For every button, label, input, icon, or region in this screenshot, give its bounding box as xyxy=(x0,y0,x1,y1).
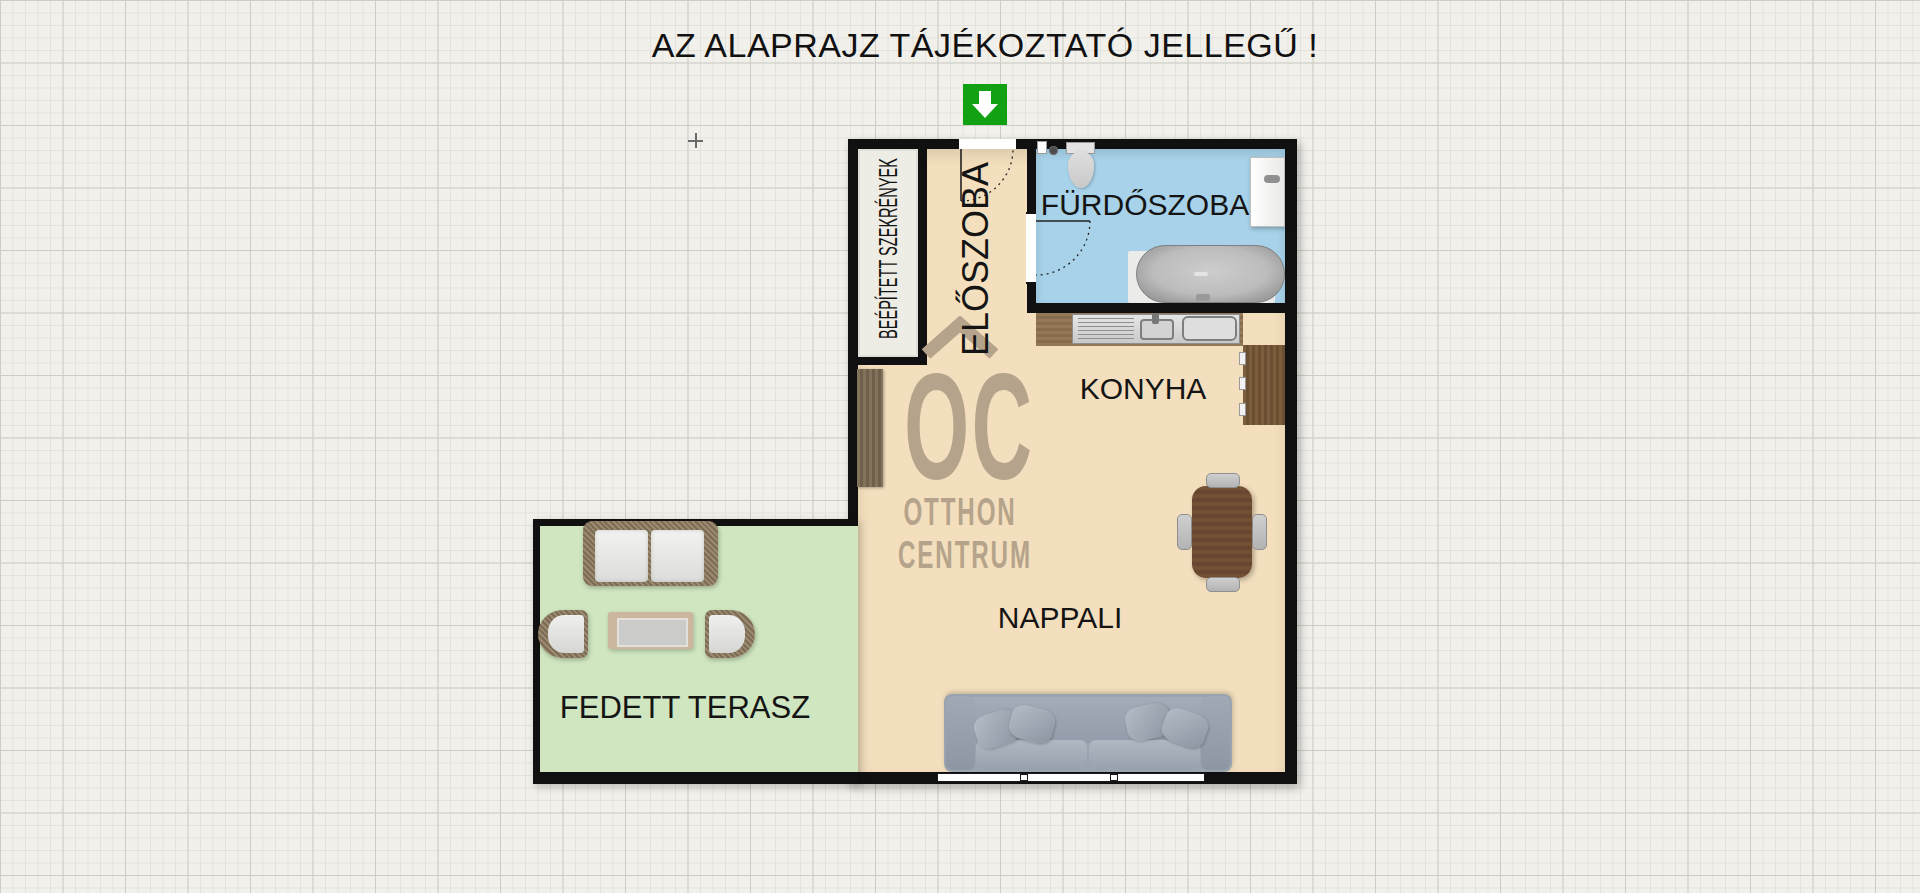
dining-chair xyxy=(1252,514,1267,550)
dining-chair xyxy=(1206,577,1240,592)
outdoor-chair-cushion xyxy=(709,615,745,653)
toilet-paper-holder xyxy=(1037,141,1047,154)
outdoor-sofa-cushion xyxy=(595,530,648,582)
room-label-bathroom: FÜRDŐSZOBA xyxy=(945,188,1345,222)
bathroom-door-opening xyxy=(1026,212,1036,284)
bathtub-highlight xyxy=(1194,272,1208,276)
room-label-hall: ELŐSZOBA xyxy=(954,109,998,409)
living-room-window xyxy=(937,773,1205,782)
dining-table xyxy=(1192,486,1252,578)
drain-fixture xyxy=(1049,146,1058,155)
grid-cross-marker xyxy=(695,133,697,148)
kitchen-faucet xyxy=(1152,313,1159,324)
page-title: AZ ALAPRAJZ TÁJÉKOZTATÓ JELLEGŰ ! xyxy=(640,26,1330,65)
watermark-line1: OTTHON xyxy=(898,490,1022,534)
room-label-terrace: FEDETT TERASZ xyxy=(485,690,885,726)
room-label-closet: BEÉPÍTETT SZEKRÉNYEK xyxy=(877,171,899,339)
window-divider-mark xyxy=(1110,774,1118,781)
dining-chair xyxy=(1206,473,1240,488)
kitchen-sink-basin-large xyxy=(1182,316,1237,341)
dining-chair xyxy=(1177,514,1192,550)
room-label-kitchen: KONYHA xyxy=(943,372,1343,406)
bathroom-bottom-wall xyxy=(1027,303,1297,313)
watermark-line2: CENTRUM xyxy=(898,533,1022,577)
vanity-faucet xyxy=(1264,175,1280,183)
outdoor-chair-cushion xyxy=(548,615,584,653)
wall-wardrobe xyxy=(857,369,883,487)
window-divider-mark xyxy=(1020,774,1028,781)
closet-right-wall xyxy=(918,139,927,365)
cabinet-handle xyxy=(1239,352,1246,365)
coffee-table-top xyxy=(617,618,688,647)
kitchen-drainboard xyxy=(1078,318,1134,340)
bathtub-faucet xyxy=(1196,294,1210,301)
bathtub xyxy=(1136,245,1285,303)
outdoor-sofa-cushion xyxy=(651,530,704,582)
room-label-living: NAPPALI xyxy=(860,601,1260,635)
sofa-armrest xyxy=(946,696,975,770)
